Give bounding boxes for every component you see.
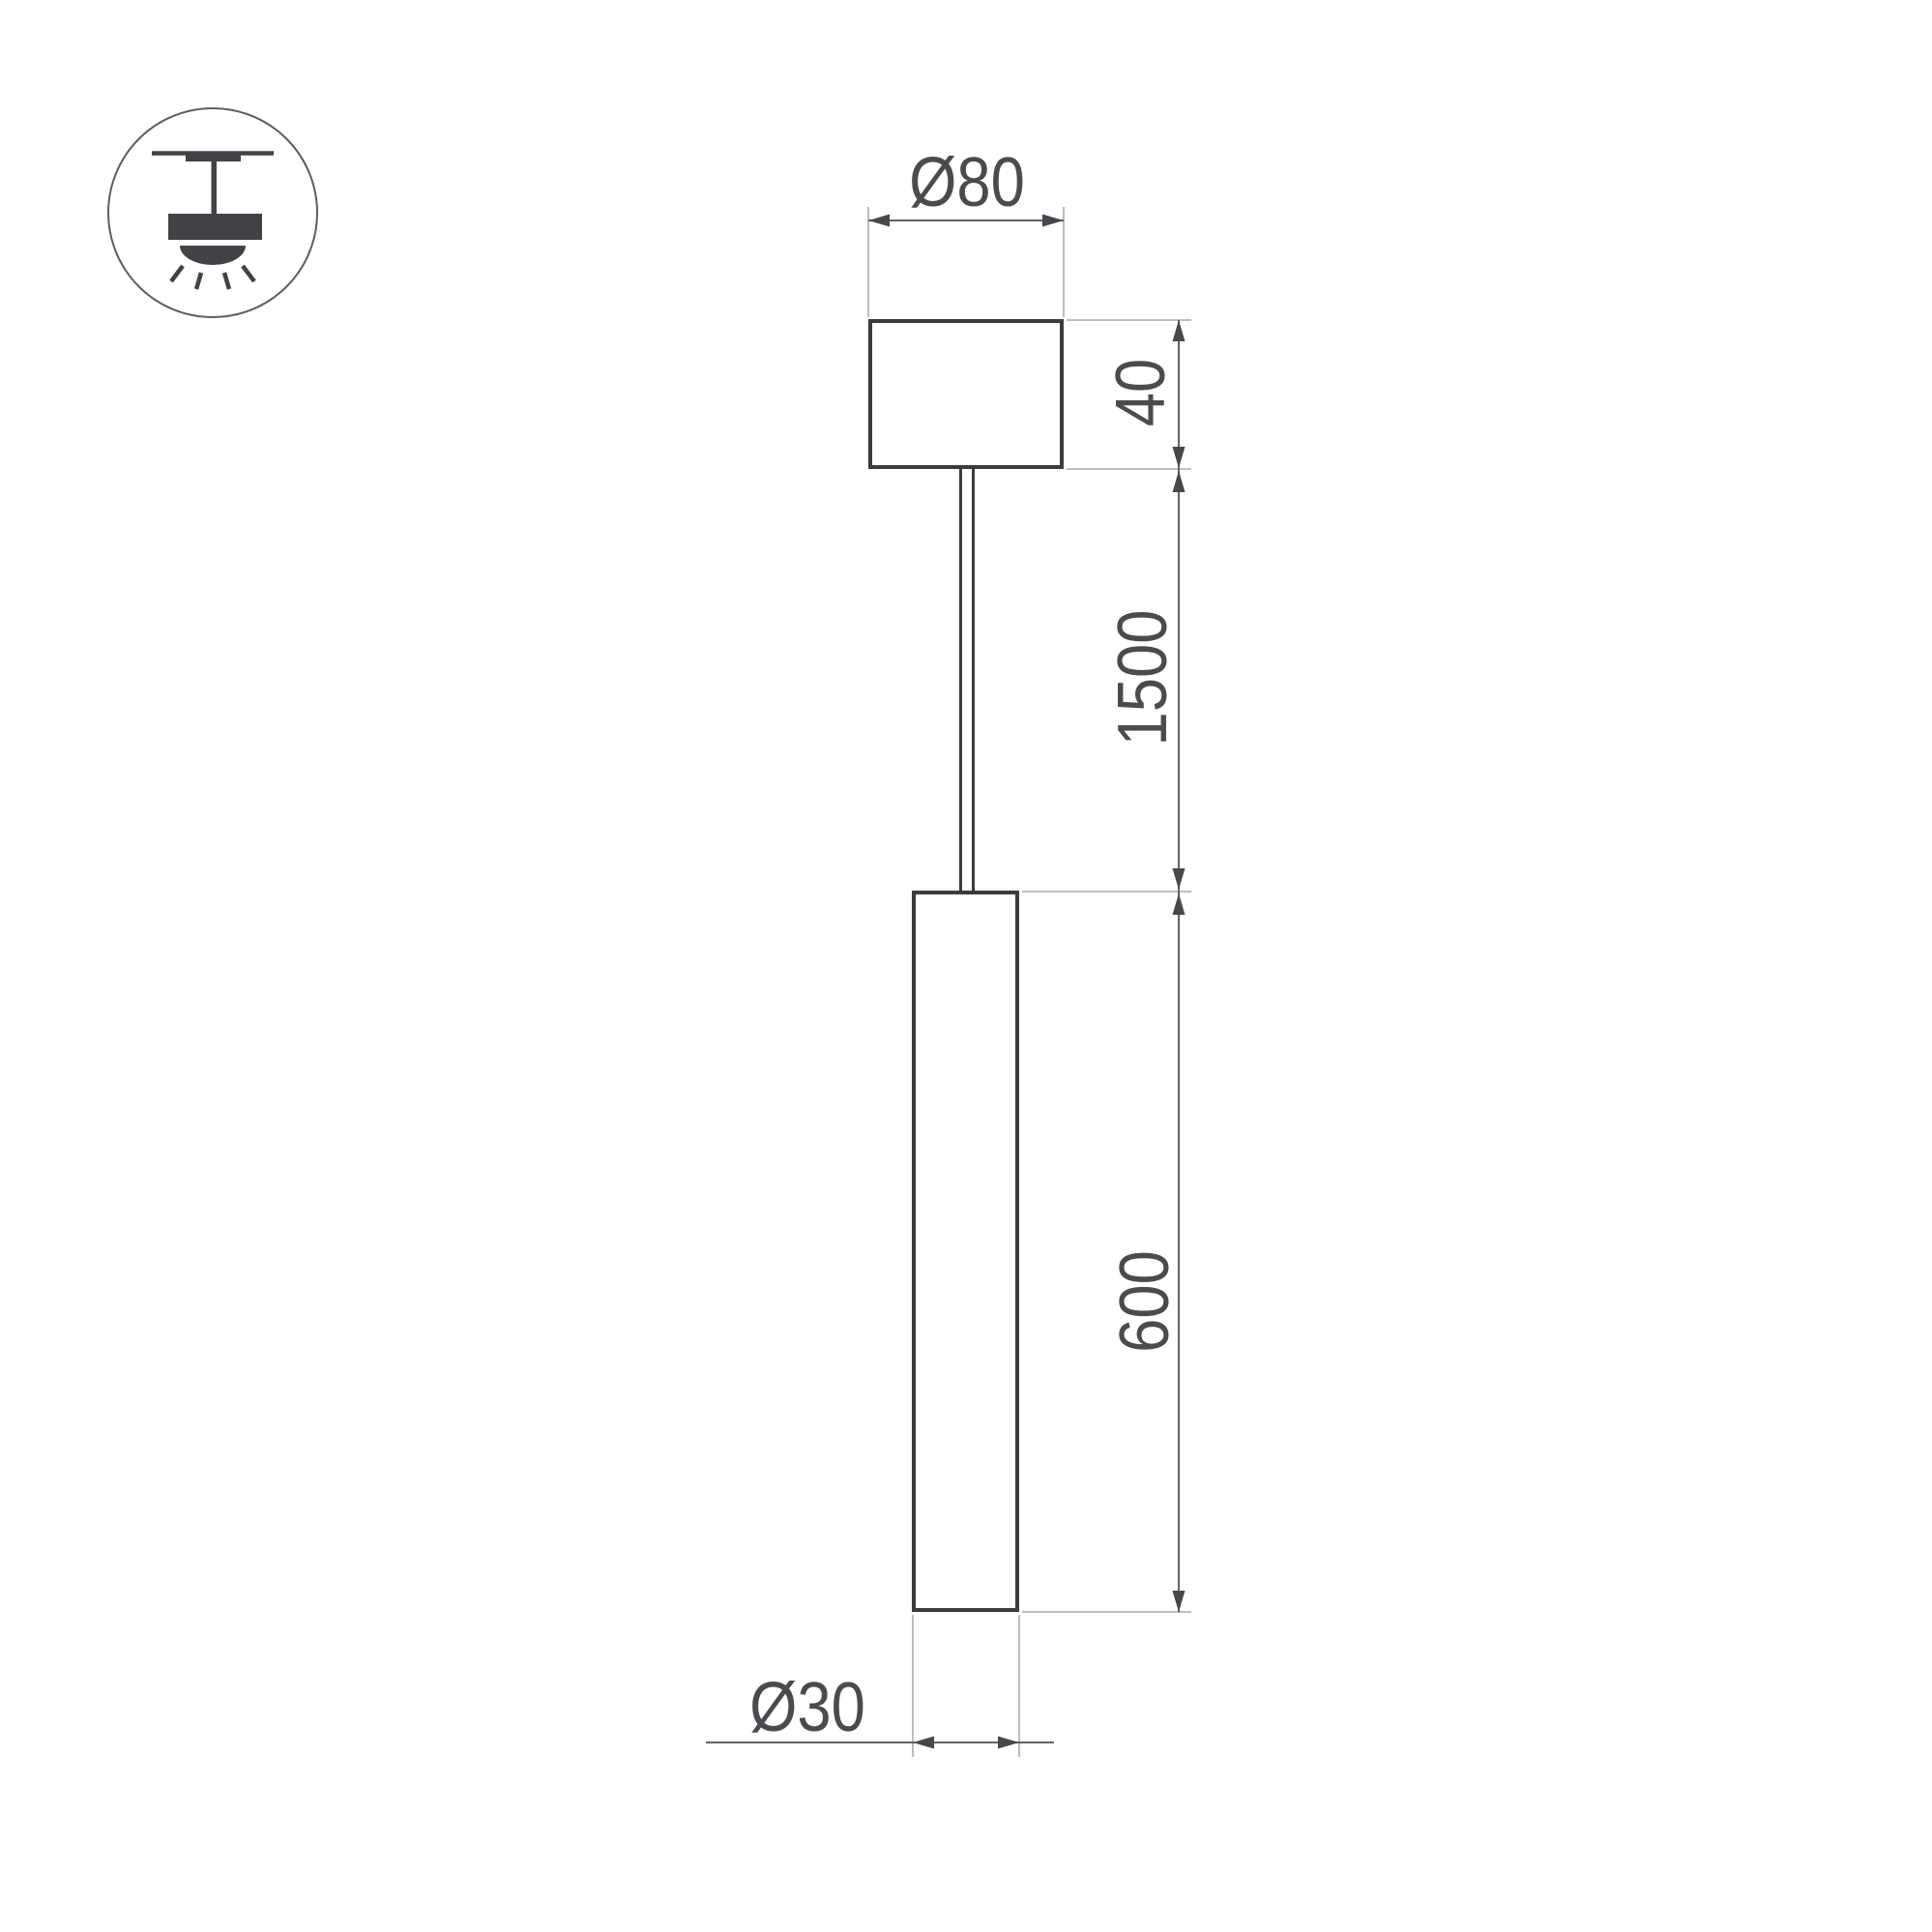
- arrowhead-left: [913, 1737, 934, 1749]
- arrowhead-down: [1173, 1591, 1186, 1612]
- light-ray-icon: [243, 266, 254, 281]
- arrowhead-up: [1173, 471, 1186, 492]
- arrowhead-up: [1173, 893, 1186, 915]
- icon-light-rays: [171, 266, 254, 289]
- icon-suspension-stem: [212, 160, 218, 215]
- light-ray-icon: [171, 266, 183, 281]
- arrowhead-down: [1173, 447, 1186, 468]
- pendant-lamp-icon: [108, 108, 317, 317]
- luminaire-outline: [870, 321, 1062, 1610]
- drawing-canvas: Ø80 40 1500 600 Ø30: [0, 0, 1932, 1932]
- icon-lamp-body: [168, 214, 262, 240]
- canopy-rect: [870, 321, 1062, 467]
- icon-light-dome: [180, 246, 246, 265]
- dim-label-tube-diameter: Ø30: [749, 1669, 865, 1746]
- arrowhead-down: [1173, 868, 1186, 890]
- arrowhead-left: [868, 215, 890, 227]
- arrowhead-right: [998, 1737, 1019, 1749]
- dim-label-canopy-height: 40: [1102, 359, 1180, 426]
- dim-label-tube-length: 600: [1106, 1250, 1184, 1353]
- arrowhead-right: [1042, 215, 1064, 227]
- arrowhead-up: [1173, 320, 1186, 341]
- light-ray-icon: [196, 273, 201, 289]
- dim-label-suspension-length: 1500: [1104, 610, 1182, 746]
- dim-label-canopy-diameter: Ø80: [909, 144, 1025, 221]
- light-ray-icon: [224, 273, 229, 289]
- technical-drawing: Ø80 40 1500 600 Ø30: [0, 0, 1932, 1932]
- lamp-tube-rect: [914, 893, 1017, 1610]
